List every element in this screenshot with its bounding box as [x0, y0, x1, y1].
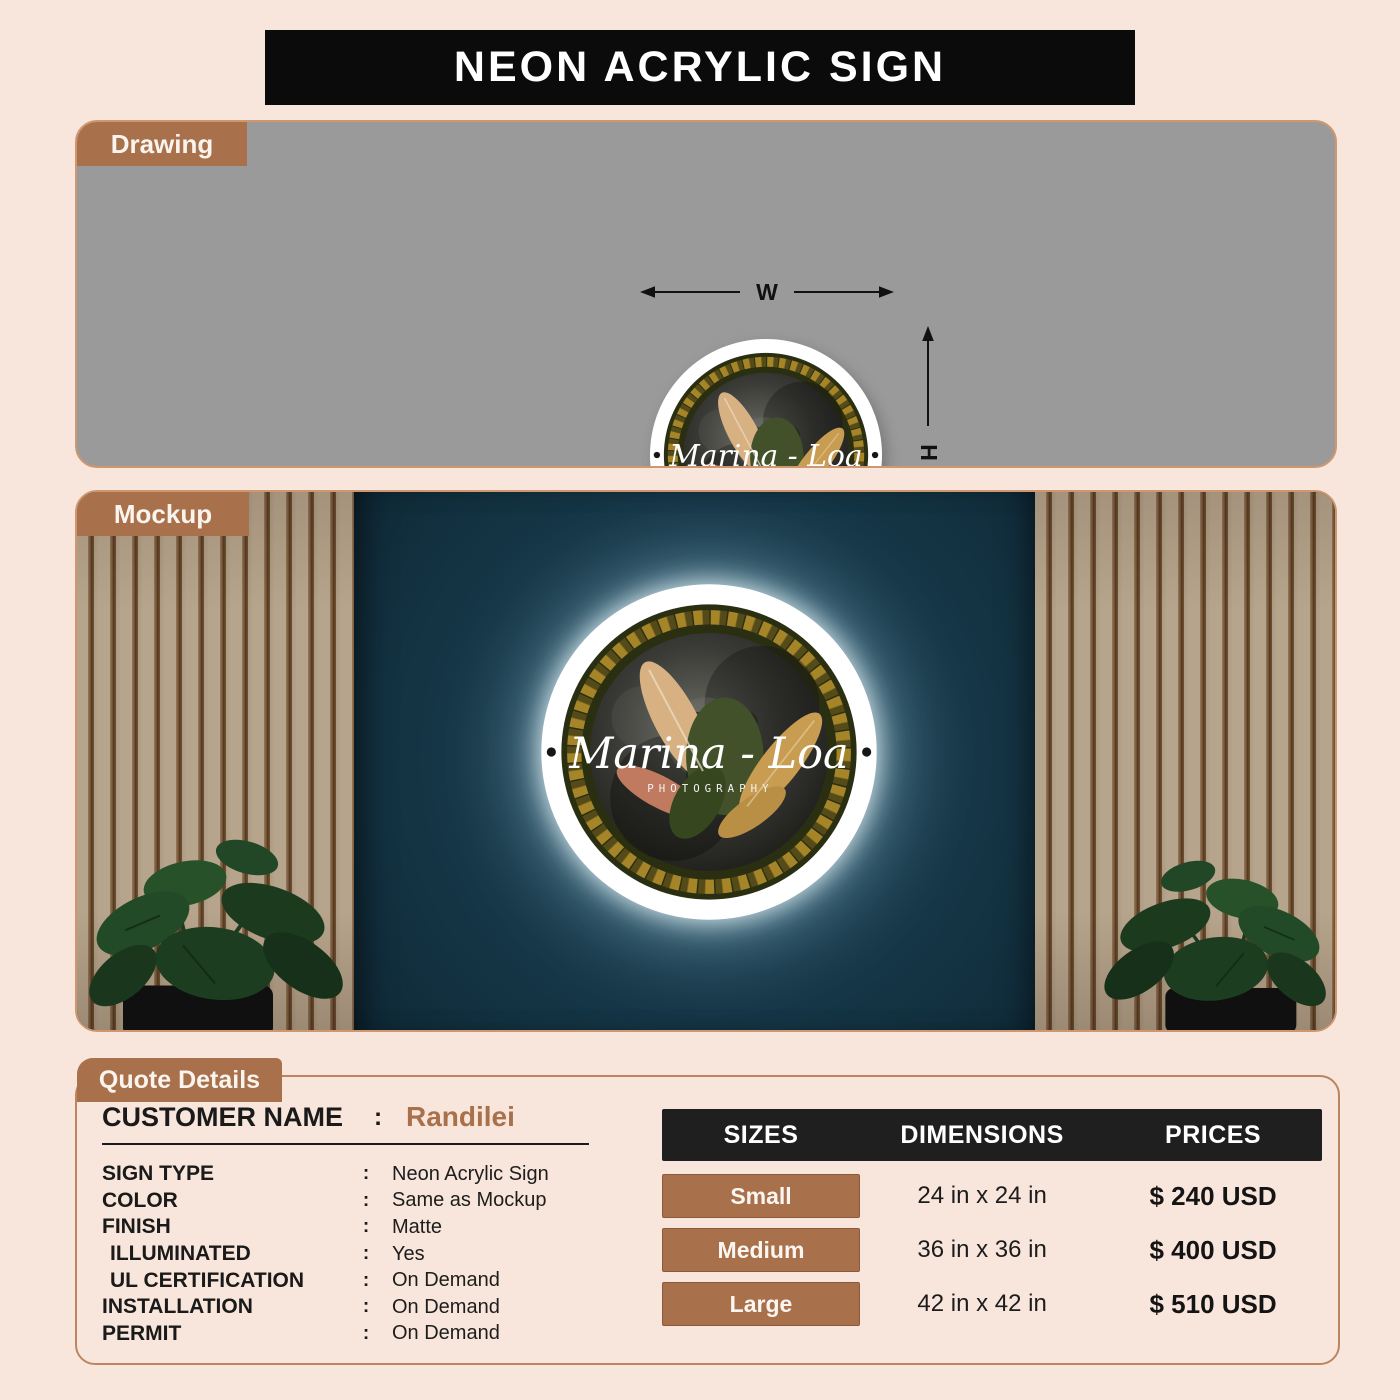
- customer-name-label: CUSTOMER NAME: [102, 1102, 364, 1133]
- separator-colon: :: [352, 1323, 380, 1345]
- separator-colon: :: [364, 1103, 392, 1132]
- mockup-tab: Mockup: [77, 492, 249, 536]
- width-dimension-indicator: W: [640, 278, 894, 306]
- pricing-header-sizes: SIZES: [662, 1121, 860, 1150]
- pricing-row-small: Small 24 in x 24 in $ 240 USD: [662, 1173, 1322, 1219]
- field-label: INSTALLATION: [102, 1295, 352, 1319]
- field-value: Matte: [380, 1216, 549, 1239]
- field-row-installation: INSTALLATION : On Demand: [102, 1294, 549, 1321]
- separator-colon: :: [352, 1270, 380, 1292]
- arrow-right-icon: [794, 285, 894, 299]
- drawing-section: Drawing W H: [75, 120, 1337, 468]
- field-label: FINISH: [102, 1215, 352, 1239]
- quote-details-tab-label: Quote Details: [99, 1066, 260, 1095]
- field-value: On Demand: [380, 1296, 549, 1319]
- field-row-sign-type: SIGN TYPE : Neon Acrylic Sign: [102, 1161, 549, 1188]
- dimensions-value: 42 in x 42 in: [860, 1290, 1104, 1318]
- width-label: W: [756, 279, 778, 306]
- size-chip-small: Small: [662, 1174, 860, 1218]
- field-row-illuminated: ILLUMINATED : Yes: [102, 1241, 549, 1268]
- dimensions-value: 24 in x 24 in: [860, 1182, 1104, 1210]
- price-value: $ 510 USD: [1104, 1289, 1322, 1320]
- separator-colon: :: [352, 1243, 380, 1265]
- customer-divider: [102, 1143, 589, 1145]
- field-label: SIGN TYPE: [102, 1162, 352, 1186]
- arrow-left-icon: [640, 285, 740, 299]
- size-chip-medium: Medium: [662, 1228, 860, 1272]
- drawing-tab-label: Drawing: [111, 129, 214, 160]
- pricing-table: SIZES DIMENSIONS PRICES Small 24 in x 24…: [662, 1109, 1322, 1327]
- customer-name-value: Randilei: [392, 1101, 515, 1133]
- mockup-tab-label: Mockup: [114, 499, 212, 530]
- field-value: On Demand: [380, 1322, 549, 1345]
- quote-sheet-page: NEON ACRYLIC SIGN Drawing W H: [0, 0, 1400, 1400]
- sign-mockup-graphic: [537, 580, 881, 924]
- field-value: Yes: [380, 1243, 549, 1266]
- separator-colon: :: [352, 1296, 380, 1318]
- field-label: UL CERTIFICATION: [102, 1269, 352, 1293]
- quote-details-tab: Quote Details: [77, 1058, 282, 1102]
- sign-drawing-graphic: [647, 336, 885, 468]
- dimensions-value: 36 in x 36 in: [860, 1236, 1104, 1264]
- field-value: On Demand: [380, 1269, 549, 1292]
- pricing-header-prices: PRICES: [1104, 1121, 1322, 1150]
- field-row-finish: FINISH : Matte: [102, 1214, 549, 1241]
- separator-colon: :: [352, 1163, 380, 1185]
- field-label: ILLUMINATED: [102, 1242, 352, 1266]
- customer-name-row: CUSTOMER NAME : Randilei: [102, 1101, 515, 1133]
- separator-colon: :: [352, 1190, 380, 1212]
- quote-details-section: Quote Details CUSTOMER NAME : Randilei S…: [75, 1075, 1340, 1365]
- field-row-ul-certification: UL CERTIFICATION : On Demand: [102, 1267, 549, 1294]
- page-title: NEON ACRYLIC SIGN: [454, 43, 946, 92]
- height-label: H: [915, 444, 942, 461]
- field-value: Neon Acrylic Sign: [380, 1163, 549, 1186]
- field-row-permit: PERMIT : On Demand: [102, 1321, 549, 1348]
- pricing-rows: Small 24 in x 24 in $ 240 USD Medium 36 …: [662, 1173, 1322, 1327]
- mockup-section: Mockup: [75, 490, 1337, 1032]
- separator-colon: :: [352, 1216, 380, 1238]
- pricing-header-row: SIZES DIMENSIONS PRICES: [662, 1109, 1322, 1161]
- plant-right: [1085, 842, 1337, 1032]
- drawing-tab: Drawing: [77, 122, 247, 166]
- field-row-color: COLOR : Same as Mockup: [102, 1188, 549, 1215]
- pricing-header-dimensions: DIMENSIONS: [860, 1121, 1104, 1150]
- title-banner: NEON ACRYLIC SIGN: [265, 30, 1135, 105]
- plant-left: [75, 823, 365, 1032]
- field-label: PERMIT: [102, 1322, 352, 1346]
- size-chip-large: Large: [662, 1282, 860, 1326]
- arrow-up-icon: [920, 326, 936, 426]
- quote-fields-list: SIGN TYPE : Neon Acrylic Sign COLOR : Sa…: [102, 1161, 549, 1347]
- price-value: $ 240 USD: [1104, 1181, 1322, 1212]
- pricing-row-large: Large 42 in x 42 in $ 510 USD: [662, 1281, 1322, 1327]
- field-value: Same as Mockup: [380, 1189, 549, 1212]
- pricing-row-medium: Medium 36 in x 36 in $ 400 USD: [662, 1227, 1322, 1273]
- field-label: COLOR: [102, 1189, 352, 1213]
- height-dimension-indicator: H: [913, 326, 943, 468]
- price-value: $ 400 USD: [1104, 1235, 1322, 1266]
